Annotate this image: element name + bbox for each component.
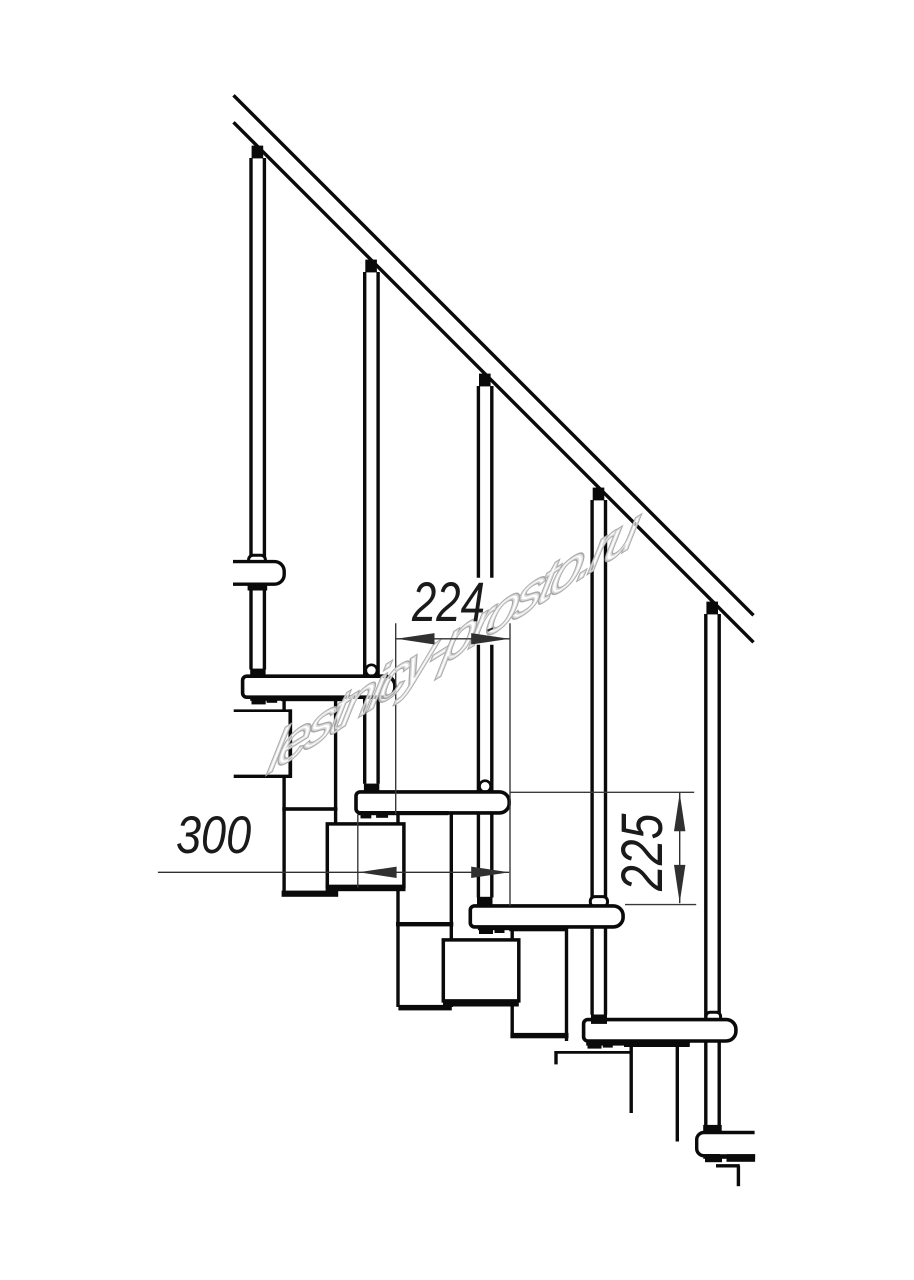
svg-text:225: 225 <box>610 813 675 892</box>
svg-text:300: 300 <box>176 806 251 865</box>
svg-text:224: 224 <box>411 571 485 633</box>
